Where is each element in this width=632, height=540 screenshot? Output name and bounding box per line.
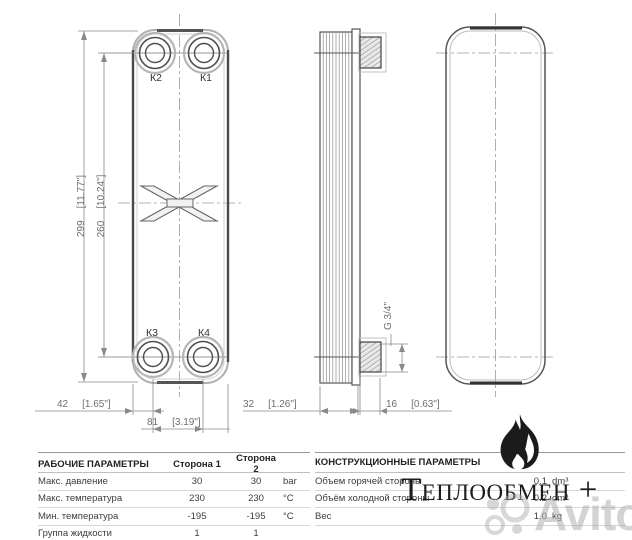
- port-label-k3: К3: [146, 327, 158, 339]
- bottom-connector: [359, 338, 386, 376]
- construction-params-title: КОНСТРУКЦИОННЫЕ ПАРАМЕТРЫ: [315, 457, 609, 468]
- working-params-title: РАБОЧИЕ ПАРАМЕТРЫ: [38, 459, 158, 470]
- working-params-table: РАБОЧИЕ ПАРАМЕТРЫ Сторона 1 Сторона 2 Ма…: [38, 452, 310, 540]
- front-view: К2 К1 К3 К4: [35, 14, 242, 433]
- table-row: Макс. температура 230 230 °C: [38, 491, 310, 509]
- row-value-2: 1: [236, 528, 276, 539]
- port-label-k4: К4: [198, 327, 210, 339]
- thread-label: G 3/4": [383, 302, 394, 330]
- dim-32: 32[1.26"]: [243, 399, 297, 410]
- row-value-2: 230: [236, 493, 276, 504]
- plate-pattern-logo: [141, 186, 217, 221]
- port-label-k2: К2: [150, 72, 162, 84]
- row-value-1: 1: [158, 528, 236, 539]
- port-label-k1: К1: [200, 72, 212, 84]
- col-side1: Сторона 1: [158, 459, 236, 470]
- row-unit: °C: [276, 493, 310, 504]
- row-value-1: -195: [158, 511, 236, 522]
- dim-81: 81[3.19"]: [147, 417, 201, 428]
- avito-watermark: Avito: [480, 489, 632, 539]
- dim-299: 299[11.77"]: [76, 175, 87, 237]
- row-value-2: -195: [236, 511, 276, 522]
- row-label: Макс. температура: [38, 493, 158, 504]
- row-value-1: 30: [158, 476, 236, 487]
- row-label: Макс. давление: [38, 476, 158, 487]
- table-row: Группа жидкости 1 1: [38, 526, 310, 540]
- working-params-header: РАБОЧИЕ ПАРАМЕТРЫ Сторона 1 Сторона 2: [38, 453, 310, 473]
- dim-260: 260[10.24"]: [96, 174, 107, 237]
- watermark-text: Avito: [534, 491, 632, 537]
- row-unit: °C: [276, 511, 310, 522]
- row-unit: bar: [276, 476, 310, 487]
- heat-exchanger-drawing: К2 К1 К3 К4: [0, 0, 632, 450]
- back-view: [436, 13, 556, 397]
- row-value-1: 230: [158, 493, 236, 504]
- table-row: Мин. температура -195 -195 °C: [38, 508, 310, 526]
- row-label: Мин. температура: [38, 511, 158, 522]
- dim-42: 42[1.65"]: [57, 399, 111, 410]
- side-view: G 3/4" 32[1.26"] 16[0.63"]: [243, 29, 452, 415]
- row-label: Группа жидкости: [38, 528, 158, 539]
- avito-logo-icon: [480, 489, 534, 539]
- row-label: Вес: [315, 511, 505, 522]
- table-row: Макс. давление 30 30 bar: [38, 473, 310, 491]
- dim-16: 16[0.63"]: [386, 399, 440, 410]
- top-connector: [359, 33, 386, 72]
- col-side2: Сторона 2: [236, 453, 276, 475]
- screenshot-canvas: К2 К1 К3 К4: [0, 0, 632, 540]
- row-value-2: 30: [236, 476, 276, 487]
- construction-params-header: КОНСТРУКЦИОННЫЕ ПАРАМЕТРЫ: [315, 453, 625, 473]
- flame-icon: [494, 412, 546, 474]
